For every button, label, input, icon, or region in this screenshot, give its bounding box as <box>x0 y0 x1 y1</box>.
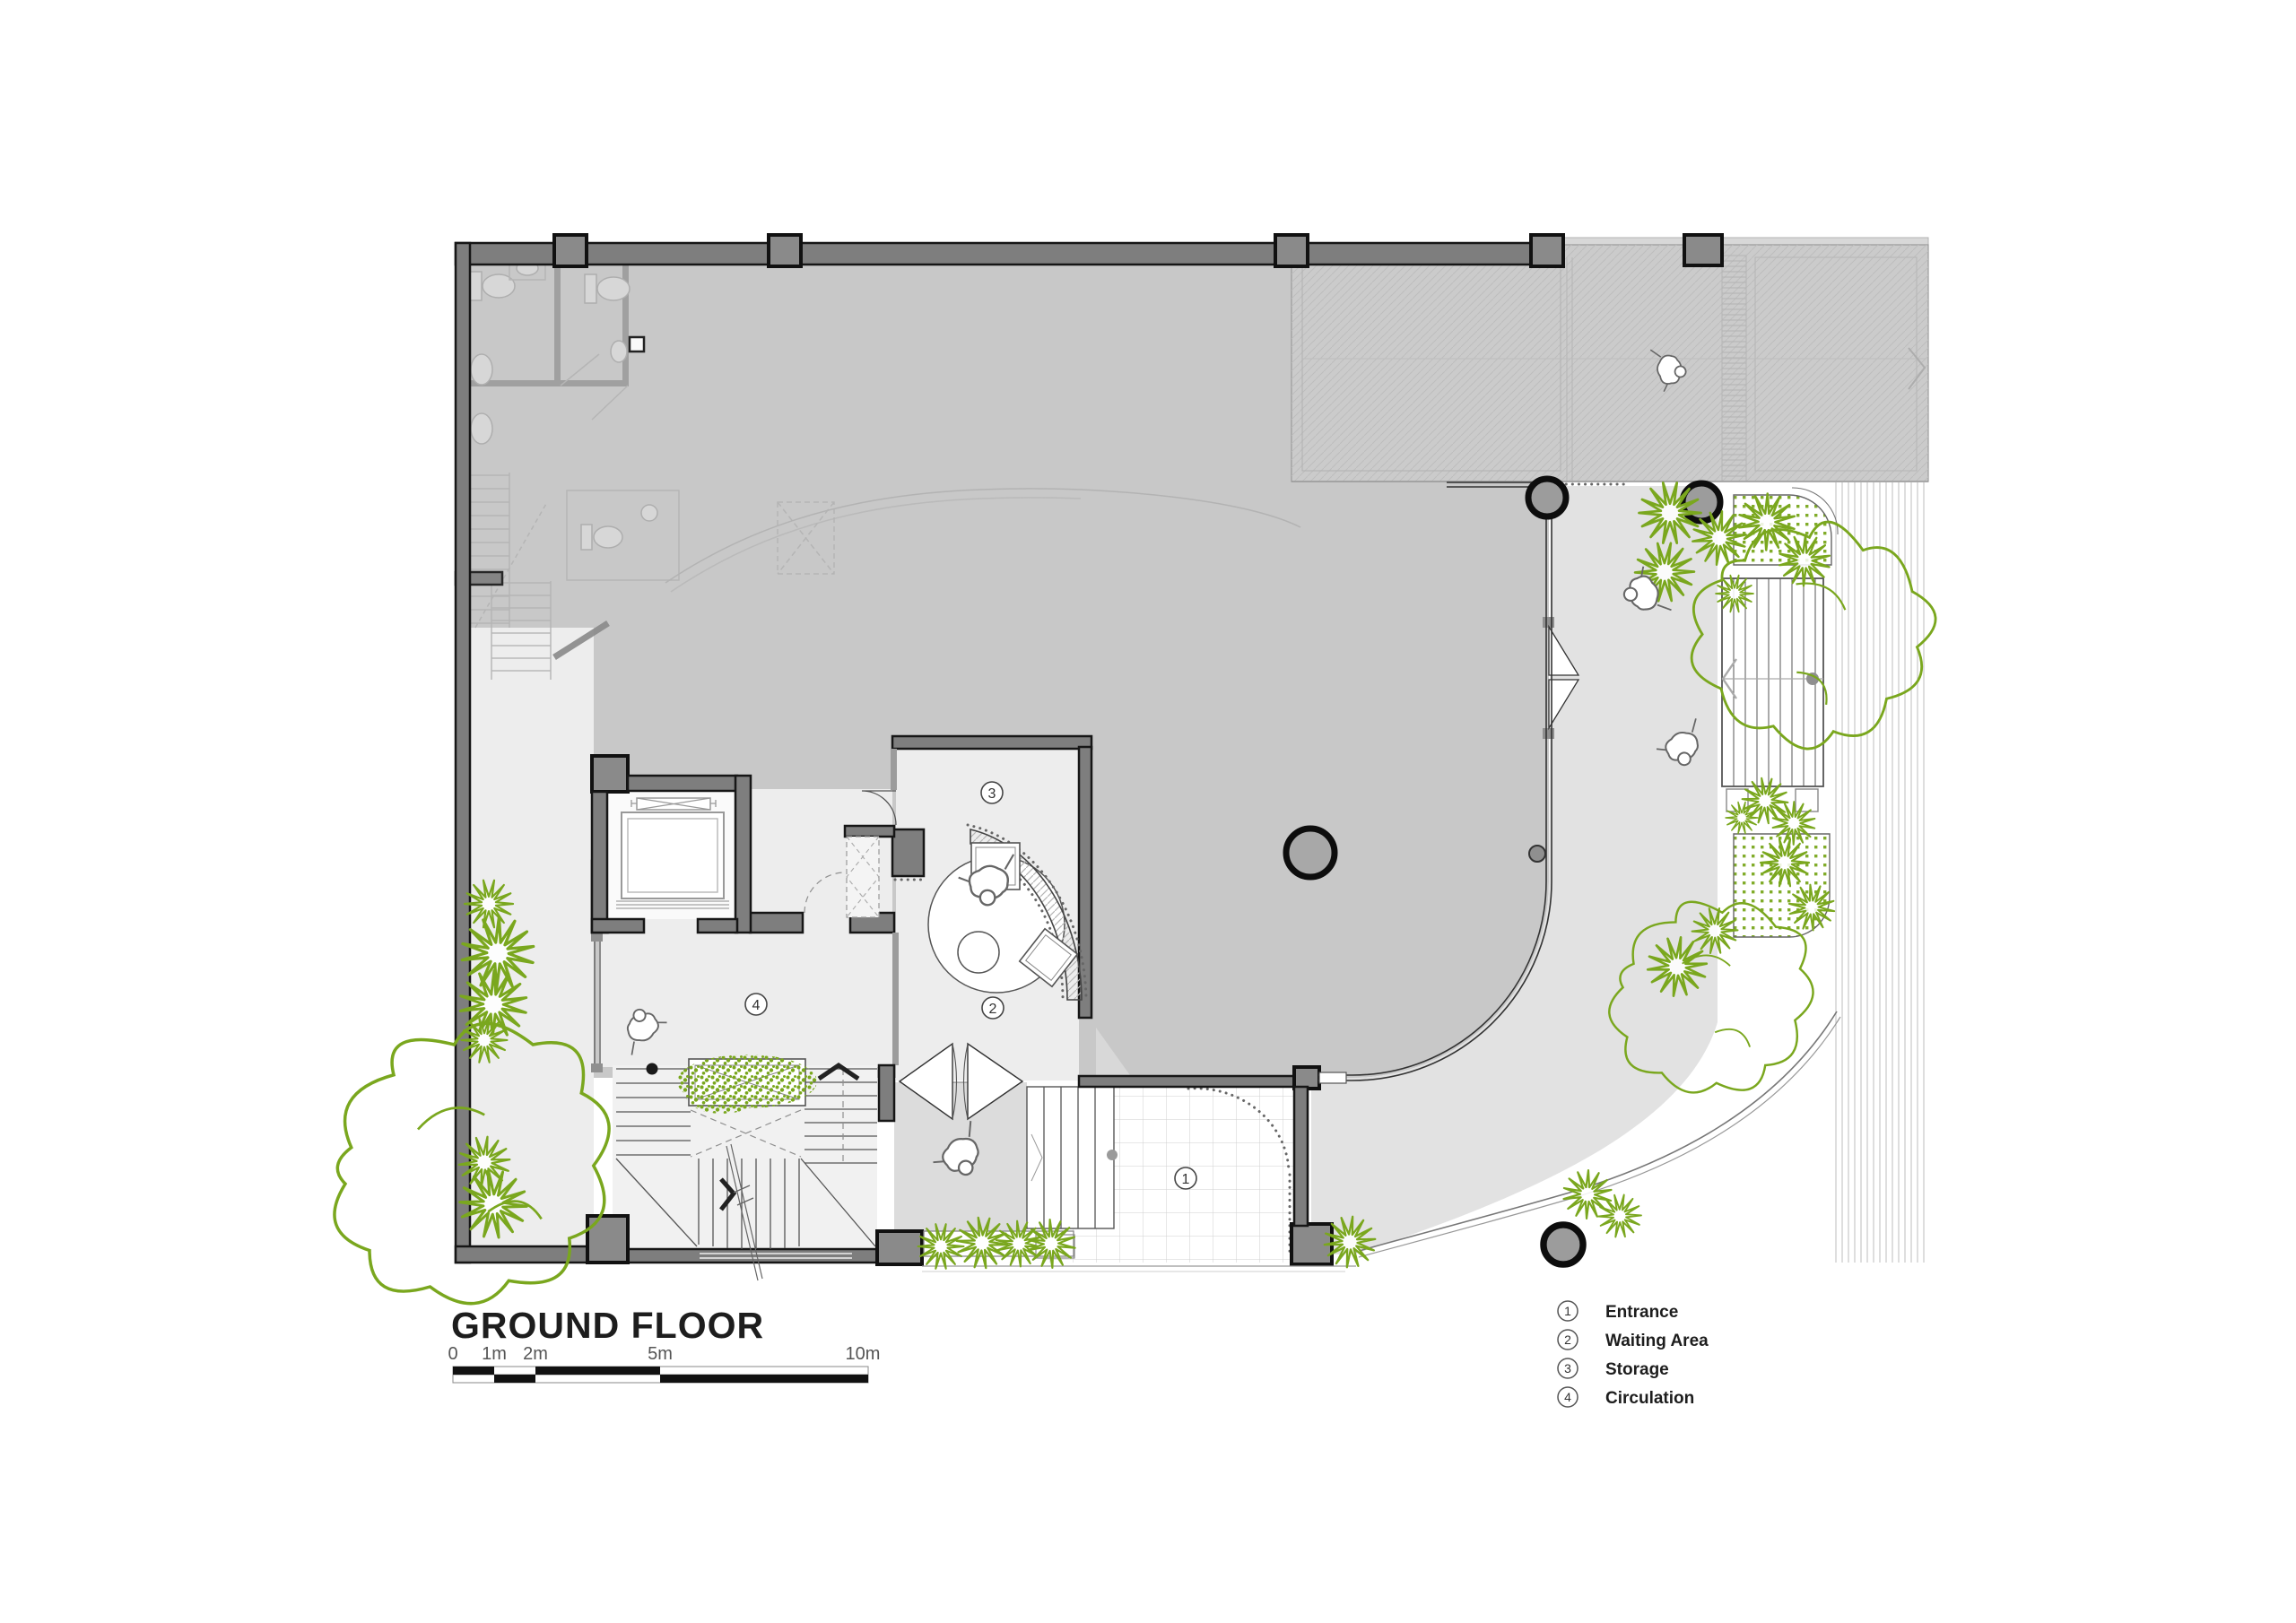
scale-tick: 1m <box>482 1344 507 1364</box>
legend-number: 2 <box>1564 1332 1571 1347</box>
column <box>1294 1067 1319 1089</box>
floor-plan-drawing: 1 2 3 4 GROUND FLOOR 0 1m 2m 5m 10m <box>0 0 2296 1623</box>
toilet-icon <box>470 272 515 300</box>
stair-planter <box>677 1055 817 1114</box>
legend-item-circulation: 4 Circulation <box>1558 1387 1694 1408</box>
tree-icon <box>1544 1225 1583 1264</box>
legend: 1 Entrance 2 Waiting Area 3 Storage 4 Ci… <box>1558 1301 1709 1408</box>
wall-pier <box>892 829 924 876</box>
column <box>592 756 628 792</box>
side-table <box>958 932 999 973</box>
scale-bar: 0 1m 2m 5m 10m <box>448 1344 880 1383</box>
tree-icon <box>1528 479 1566 516</box>
service-shaft <box>847 837 879 917</box>
marker-number: 1 <box>1182 1172 1190 1187</box>
legend-number: 3 <box>1564 1361 1571 1376</box>
scale-tick: 5m <box>648 1344 673 1364</box>
column <box>1531 235 1563 266</box>
plan-marker-storage: 3 <box>981 782 1003 803</box>
entrance-steps <box>1027 1087 1114 1228</box>
scale-tick: 10m <box>846 1344 881 1364</box>
legend-item-entrance: 1 Entrance <box>1558 1301 1678 1322</box>
column <box>1275 235 1308 266</box>
entrance-north-wall <box>1079 1076 1294 1087</box>
top-wall <box>456 243 1562 265</box>
floor-plan-sheet: 1 2 3 4 GROUND FLOOR 0 1m 2m 5m 10m <box>0 0 2296 1623</box>
toilet-icon <box>585 274 630 303</box>
legend-item-storage: 3 Storage <box>1558 1358 1669 1379</box>
waiting-north-wall <box>892 736 1091 749</box>
roof-hatch-block <box>1291 238 1928 482</box>
wall-node <box>630 337 644 352</box>
scale-tick: 2m <box>523 1344 548 1364</box>
toilet-icon <box>581 525 622 550</box>
basin-icon <box>471 354 492 385</box>
sink-icon <box>641 505 657 521</box>
plant-icon <box>1590 1186 1650 1246</box>
marker-number: 2 <box>989 1002 997 1017</box>
basin-icon <box>471 413 492 444</box>
legend-label: Storage <box>1605 1360 1669 1379</box>
legend-label: Waiting Area <box>1605 1332 1709 1350</box>
post-dot <box>1529 846 1545 862</box>
handrail-post-dot <box>1107 1150 1118 1160</box>
neighbour-striped-strip <box>1834 482 1928 1263</box>
elevator-car-icon <box>616 798 729 908</box>
legend-item-waiting-area: 2 Waiting Area <box>1558 1330 1709 1350</box>
column <box>877 1231 922 1264</box>
marker-number: 4 <box>752 998 761 1013</box>
round-column <box>1286 829 1335 877</box>
legend-number: 4 <box>1564 1390 1571 1404</box>
page-title: GROUND FLOOR <box>451 1305 764 1346</box>
column <box>1684 235 1722 265</box>
plan-marker-waiting: 2 <box>982 997 1004 1019</box>
scale-tick: 0 <box>448 1344 457 1364</box>
marker-number: 3 <box>988 786 996 802</box>
legend-label: Entrance <box>1605 1303 1678 1322</box>
legend-label: Circulation <box>1605 1389 1694 1408</box>
entrance-east-wall <box>1294 1087 1308 1226</box>
column <box>554 235 587 266</box>
plan-marker-circulation: 4 <box>745 994 767 1015</box>
stair-post-dot <box>647 1063 658 1075</box>
sink-icon <box>611 341 627 362</box>
legend-number: 1 <box>1564 1304 1571 1318</box>
column <box>769 235 801 266</box>
plan-marker-entrance: 1 <box>1175 1167 1196 1189</box>
